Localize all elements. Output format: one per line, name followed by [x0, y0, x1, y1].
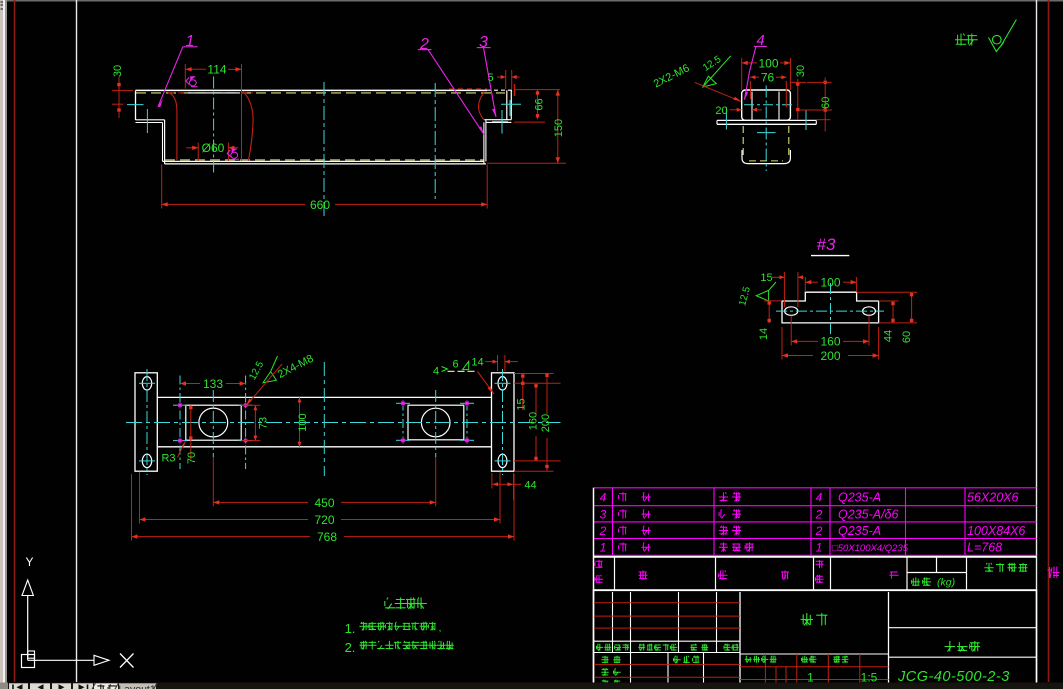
svg-text:20: 20 [715, 105, 727, 117]
svg-text:73: 73 [257, 417, 269, 429]
svg-text:30: 30 [112, 65, 124, 77]
svg-text:2: 2 [419, 36, 429, 53]
svg-text:720: 720 [314, 513, 334, 527]
svg-text:14: 14 [758, 328, 770, 340]
svg-text:2.: 2. [345, 640, 356, 655]
svg-text:66: 66 [534, 98, 546, 110]
svg-text:□50X100X4/Q235: □50X100X4/Q235 [832, 543, 909, 554]
svg-text:1: 1 [816, 541, 823, 555]
svg-text:200: 200 [820, 349, 840, 363]
svg-text:60: 60 [901, 331, 913, 343]
svg-text:100: 100 [820, 276, 840, 290]
svg-text:2: 2 [815, 524, 823, 538]
svg-text:450: 450 [314, 496, 334, 510]
svg-text:30: 30 [795, 65, 807, 77]
svg-text:Ø60: Ø60 [202, 141, 225, 155]
svg-text:(kg): (kg) [937, 577, 955, 589]
svg-text:70: 70 [186, 452, 198, 464]
svg-text:76: 76 [761, 71, 775, 85]
svg-text:4: 4 [433, 366, 439, 378]
svg-text:100: 100 [758, 56, 778, 70]
svg-text:100X84X6: 100X84X6 [967, 524, 1025, 538]
svg-text:Layout1: Layout1 [118, 684, 156, 689]
svg-text:1:5: 1:5 [861, 671, 878, 685]
svg-text:Y: Y [25, 555, 33, 569]
svg-text:660: 660 [310, 198, 330, 212]
svg-text:56X20X6: 56X20X6 [967, 490, 1018, 504]
svg-text:160: 160 [528, 412, 540, 430]
svg-text:1: 1 [186, 33, 195, 50]
svg-text:114: 114 [207, 63, 226, 77]
svg-text:15: 15 [760, 272, 772, 284]
svg-text:4: 4 [816, 490, 823, 504]
svg-text:L=768: L=768 [967, 541, 1002, 555]
svg-text:2: 2 [815, 507, 823, 521]
svg-text:160: 160 [820, 335, 840, 349]
svg-text:,: , [439, 623, 442, 634]
svg-text:R3: R3 [161, 453, 175, 465]
svg-text:Q235-A/δ6: Q235-A/δ6 [838, 507, 898, 521]
svg-text:Q235-A: Q235-A [838, 490, 881, 504]
svg-text:Q235-A: Q235-A [838, 524, 881, 538]
svg-text:3: 3 [600, 507, 607, 521]
svg-text:2: 2 [599, 524, 607, 538]
svg-text:44: 44 [883, 330, 895, 342]
svg-text:6: 6 [452, 359, 458, 371]
svg-text:.: . [448, 642, 451, 653]
svg-text:1.: 1. [345, 621, 356, 636]
svg-text:60: 60 [820, 97, 832, 109]
svg-text:150: 150 [553, 119, 565, 137]
svg-text:14: 14 [471, 357, 483, 369]
svg-text:133: 133 [203, 377, 223, 391]
svg-text:1: 1 [807, 671, 814, 685]
svg-text:1: 1 [600, 541, 607, 555]
svg-text:4: 4 [600, 490, 607, 504]
svg-text:100: 100 [297, 413, 309, 431]
svg-text:#3: #3 [817, 235, 836, 254]
svg-text:768: 768 [317, 530, 337, 544]
svg-text:200: 200 [540, 414, 552, 432]
svg-text:15: 15 [516, 398, 528, 410]
svg-text:44: 44 [524, 480, 536, 492]
